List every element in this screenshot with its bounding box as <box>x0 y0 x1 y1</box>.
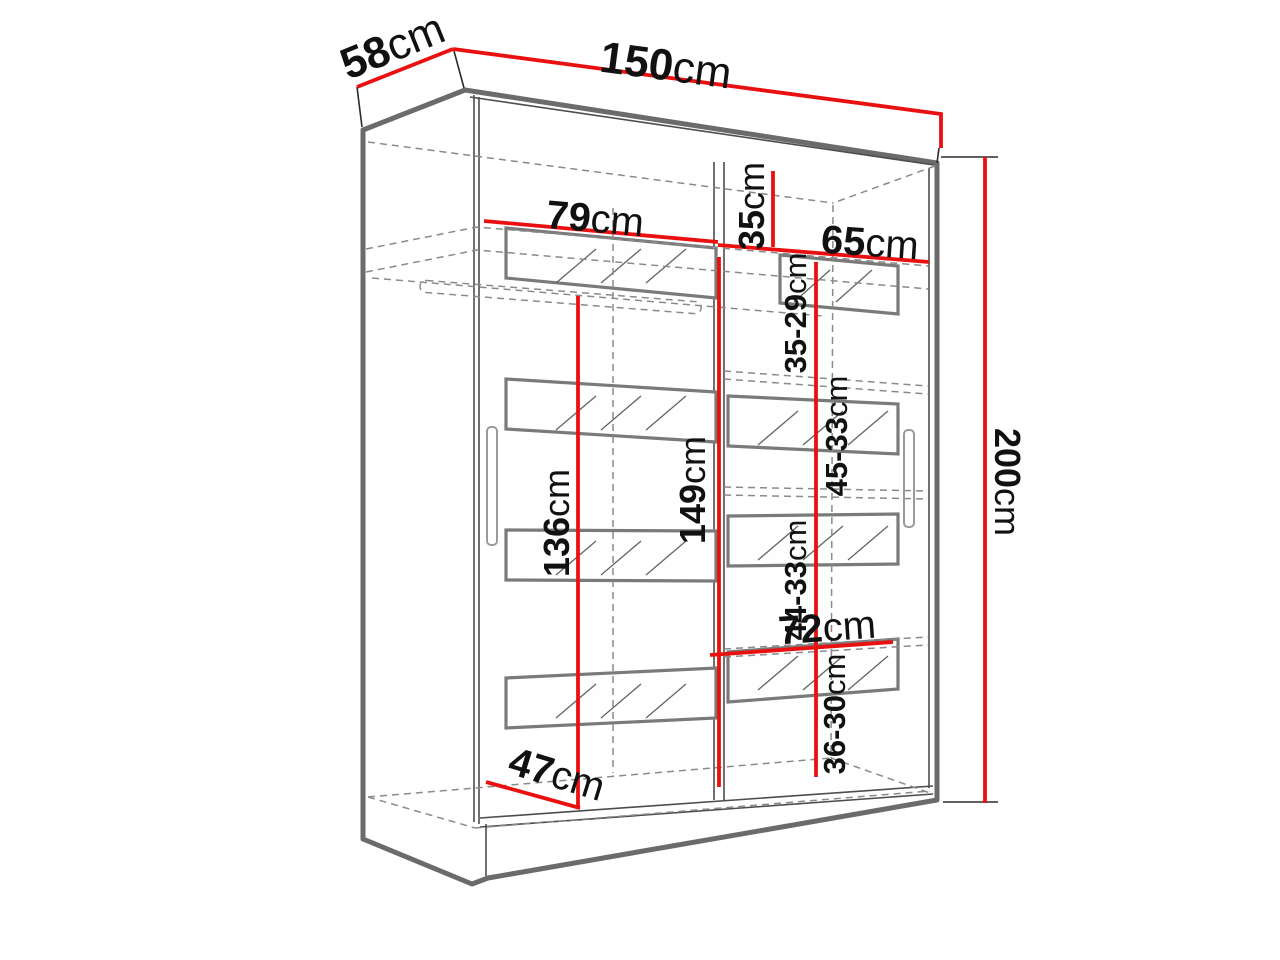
label-top-shelf-height: 35cm <box>731 162 772 250</box>
label-bottom-right-width: 72cm <box>777 603 878 654</box>
label-right-compartment-2: 45-33cm <box>819 376 854 497</box>
wardrobe-dimension-diagram: 58cm 150cm 200cm 79cm 35cm 65cm 35-29cm … <box>0 0 1280 960</box>
label-interior-height: 149cm <box>672 436 713 544</box>
label-width: 150cm <box>597 33 734 99</box>
mirror-panel <box>506 379 716 442</box>
label-hanging-height: 136cm <box>536 469 577 577</box>
label-top-left-width: 79cm <box>544 193 645 245</box>
label-height: 200cm <box>987 428 1028 536</box>
label-top-right-width: 65cm <box>820 218 921 269</box>
label-right-compartment-1: 35-29cm <box>778 253 813 374</box>
diagram-canvas: 58cm 150cm 200cm 79cm 35cm 65cm 35-29cm … <box>0 0 1280 960</box>
label-depth: 58cm <box>334 4 452 90</box>
mirror-panel <box>506 668 716 728</box>
label-right-compartment-4: 36-30cm <box>817 654 852 775</box>
